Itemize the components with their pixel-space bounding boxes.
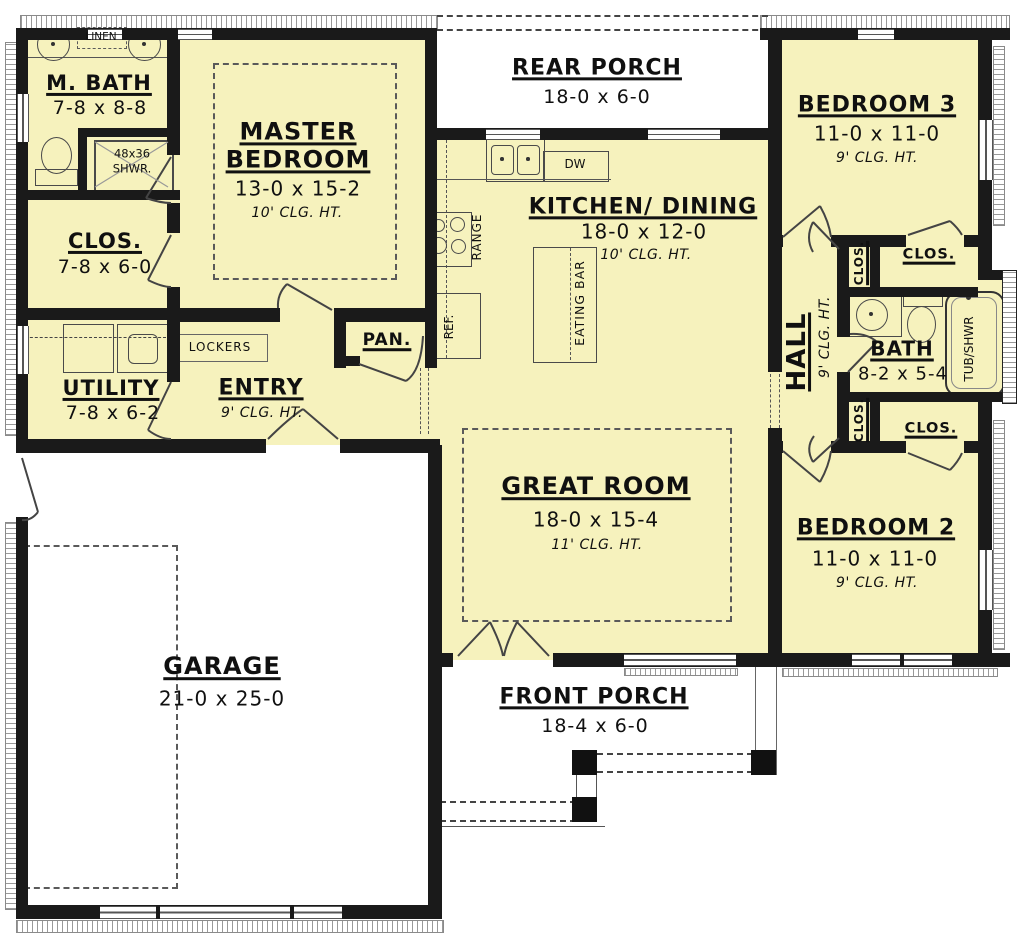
porch-column-1 [572, 750, 597, 775]
eating-bar-island [533, 247, 597, 363]
mbath-sink-right-drain [142, 42, 146, 46]
garage-layout-dash [24, 545, 178, 889]
closet-top-label: CLOS. [903, 247, 956, 264]
room-dims-closet: 7-8 x 6-0 [58, 257, 152, 279]
kitchen-sink-drain-right [526, 157, 530, 161]
wall [768, 428, 782, 653]
floor-plan: M. BATH 7-8 x 8-8 LINEN 48x36 SHWR. CLOS… [0, 0, 1024, 941]
lockers-label: LOCKERS [189, 341, 252, 355]
room-title-m-bath: M. BATH [46, 71, 152, 95]
wall [831, 441, 906, 453]
room-title-rear-porch: REAR PORCH [512, 55, 682, 80]
room-dims-bedroom3: 11-0 x 11-0 [814, 123, 940, 146]
room-ceiling-entry: 9' CLG. HT. [221, 405, 303, 421]
rear-porch-edge-dash-2 [437, 29, 768, 31]
garage-side-door [22, 458, 38, 520]
room-title-entry: ENTRY [218, 375, 303, 400]
hall-opening-dash-1 [770, 374, 771, 428]
wall [16, 28, 28, 453]
wall [334, 308, 437, 322]
wall [167, 38, 180, 155]
kitchen-counter-edge [437, 179, 611, 180]
room-title-master-bedroom: MASTER BEDROOM [206, 118, 391, 173]
corridor-opening-dash-2 [428, 368, 429, 434]
room-dims-m-bath: 7-8 x 8-8 [53, 98, 147, 120]
bath-sink-drain [869, 312, 873, 316]
room-title-utility: UTILITY [63, 376, 160, 400]
room-title-garage: GARAGE [163, 653, 280, 681]
wall [340, 439, 440, 453]
wall [428, 653, 453, 667]
window [178, 29, 212, 40]
siding-hatch-top-right [760, 15, 1010, 29]
room-title-bath: BATH [870, 338, 934, 361]
mbath-toilet-tank-icon [35, 169, 78, 186]
range-burner-4 [451, 239, 466, 254]
wall [167, 320, 180, 382]
shower-label: SHWR. [113, 162, 152, 175]
mbath-sink-left-drain [51, 42, 55, 46]
porch-column-2 [751, 750, 776, 775]
wall [837, 372, 850, 402]
room-dims-bath: 8-2 x 5-4 [858, 365, 948, 386]
porch-edge-dash-2 [597, 771, 753, 773]
garage-window [160, 906, 290, 919]
corridor-opening-dash-1 [420, 368, 421, 434]
wall [425, 28, 437, 368]
room-dims-master-bedroom: 13-0 x 15-2 [235, 178, 361, 201]
eating-bar-label: EATING BAR [573, 260, 587, 346]
window [17, 94, 29, 142]
room-title-front-porch: FRONT PORCH [499, 684, 688, 709]
room-ceiling-great-room: 11' CLG. HT. [551, 537, 642, 553]
room-dims-kitchen-dining: 18-0 x 12-0 [581, 221, 707, 244]
room-dims-garage: 21-0 x 25-0 [159, 688, 285, 711]
mbath-counter-line [16, 57, 180, 58]
window [17, 326, 29, 374]
room-title-kitchen-dining: KITCHEN/ DINING [529, 194, 757, 219]
room-dims-front-porch: 18-4 x 6-0 [541, 716, 648, 738]
wall [16, 190, 180, 200]
window [979, 120, 993, 180]
porch-step-dash-2 [440, 820, 576, 822]
garage-window [100, 906, 156, 919]
siding-hatch-under-greatroom-window [624, 668, 738, 676]
range-burner-2 [450, 217, 465, 232]
hall-title: HALL [783, 312, 813, 391]
kitchen-sink-drain-left [500, 157, 504, 161]
closet-top-small-label: CLOS. [853, 241, 867, 285]
dryer-door-icon [128, 334, 158, 364]
wall [78, 128, 180, 137]
wall [16, 308, 180, 320]
room-dims-bedroom2: 11-0 x 11-0 [812, 548, 938, 571]
wall [78, 128, 87, 194]
room-title-great-room: GREAT ROOM [501, 473, 690, 501]
window [979, 550, 993, 610]
range-label: RANGE [471, 214, 485, 261]
room-title-bedroom3: BEDROOM 3 [798, 92, 956, 117]
wall [870, 247, 880, 287]
wall [16, 28, 436, 40]
wall [768, 28, 782, 372]
linen-label: LINEN [85, 31, 116, 43]
dishwasher-label: DW [564, 158, 585, 172]
room-dims-rear-porch: 18-0 x 6-0 [543, 87, 650, 109]
siding-hatch-right-upper [993, 46, 1005, 226]
sliding-door [648, 129, 720, 140]
room-ceiling-master-bedroom: 10' CLG. HT. [251, 205, 342, 221]
shower-size-label: 48x36 [114, 147, 150, 160]
hall-opening-dash-2 [779, 374, 780, 428]
room-ceiling-kitchen-dining: 10' CLG. HT. [600, 247, 691, 263]
wall [334, 308, 346, 368]
room-title-pantry: PAN. [363, 331, 412, 351]
siding-hatch-right-lower [993, 420, 1005, 650]
wall [428, 445, 442, 919]
wall [870, 402, 880, 441]
garage-window [294, 906, 342, 919]
room-ceiling-bedroom2: 9' CLG. HT. [836, 575, 918, 591]
tub-bay-window-wall [1002, 270, 1017, 404]
window [624, 654, 736, 666]
porch-edge-dash-1 [597, 753, 753, 755]
porch-column-3 [572, 797, 597, 822]
wall [964, 441, 992, 453]
window [858, 29, 894, 40]
rear-porch-edge-dash-1 [437, 15, 768, 17]
room-dims-utility: 7-8 x 6-2 [66, 403, 160, 425]
siding-hatch-under-bedroom2 [782, 668, 998, 677]
wall [837, 287, 978, 297]
wall [837, 402, 849, 441]
porch-step-dash-1 [440, 801, 576, 803]
wall [768, 441, 783, 453]
room-title-closet: CLOS. [68, 229, 142, 253]
closet-bottom-label: CLOS. [905, 421, 958, 438]
wall [964, 235, 992, 247]
tub-shwr-label: TUB/SHWR [963, 316, 977, 381]
room-ceiling-bedroom3: 9' CLG. HT. [836, 150, 918, 166]
siding-hatch-bottom [16, 920, 444, 933]
wall [16, 439, 266, 453]
wall [167, 203, 180, 233]
wall [768, 235, 783, 247]
wall [837, 247, 849, 287]
wall [346, 356, 360, 366]
hall-ceiling: 9' CLG. HT. [817, 296, 833, 378]
wall [831, 235, 906, 247]
wall [16, 517, 28, 917]
window [904, 654, 952, 666]
room-dims-great-room: 18-0 x 15-4 [533, 509, 659, 532]
wall [428, 128, 778, 140]
porch-step-bottom-line [437, 826, 605, 827]
washer-icon [63, 324, 114, 373]
window [486, 129, 540, 140]
closet-bottom-small-label: CLOS. [853, 398, 867, 442]
room-title-bedroom2: BEDROOM 2 [797, 515, 955, 540]
wall [837, 297, 850, 337]
window [852, 654, 900, 666]
refrigerator-label: REF. [443, 315, 457, 340]
wall [180, 308, 280, 322]
